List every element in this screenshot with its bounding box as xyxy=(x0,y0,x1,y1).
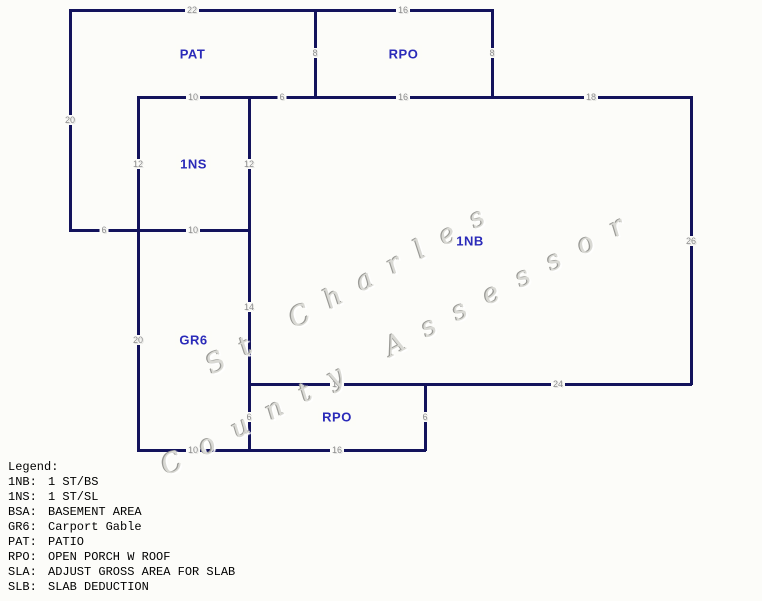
dimension-label: 6 xyxy=(420,412,429,422)
dimension-label: 12 xyxy=(131,159,145,169)
dimension-label: 16 xyxy=(330,379,344,389)
legend-row: PAT:PATIO xyxy=(8,535,235,550)
legend-desc: Carport Gable xyxy=(48,520,235,535)
dimension-label: 18 xyxy=(584,92,598,102)
dimension-label: 10 xyxy=(186,445,200,455)
dimension-label: 12 xyxy=(242,159,256,169)
legend: Legend: 1NB:1 ST/BS1NS:1 ST/SLBSA:BASEME… xyxy=(8,460,235,595)
legend-desc: 1 ST/SL xyxy=(48,490,235,505)
legend-row: SLA:ADJUST GROSS AREA FOR SLAB xyxy=(8,565,235,580)
watermark-line1: St Charles xyxy=(200,192,507,381)
watermark-line2: County Assessor xyxy=(156,201,649,483)
area-label-pat: PAT xyxy=(176,45,210,62)
dimension-label: 24 xyxy=(551,379,565,389)
legend-code: SLA: xyxy=(8,565,48,580)
legend-code: 1NS: xyxy=(8,490,48,505)
legend-desc: ADJUST GROSS AREA FOR SLAB xyxy=(48,565,235,580)
dimension-label: 26 xyxy=(684,236,698,246)
dimension-label: 10 xyxy=(186,92,200,102)
dimension-label: 8 xyxy=(487,48,496,58)
legend-desc: OPEN PORCH W ROOF xyxy=(48,550,235,565)
legend-desc: SLAB DEDUCTION xyxy=(48,580,235,595)
legend-row: BSA:BASEMENT AREA xyxy=(8,505,235,520)
area-label-1nb: 1NB xyxy=(452,232,488,249)
legend-desc: 1 ST/BS xyxy=(48,475,235,490)
dimension-label: 6 xyxy=(99,225,108,235)
legend-title: Legend: xyxy=(8,460,235,475)
dimension-label: 16 xyxy=(396,92,410,102)
legend-code: GR6: xyxy=(8,520,48,535)
legend-desc: PATIO xyxy=(48,535,235,550)
dimension-label: 8 xyxy=(310,48,319,58)
wall-segment xyxy=(248,96,251,451)
wall-segment xyxy=(137,449,426,452)
wall-segment xyxy=(137,96,140,451)
dimension-label: 20 xyxy=(131,335,145,345)
dimension-label: 16 xyxy=(396,5,410,15)
legend-row: 1NS:1 ST/SL xyxy=(8,490,235,505)
legend-code: SLB: xyxy=(8,580,48,595)
area-label-rpo-bottom: RPO xyxy=(318,409,356,426)
dimension-label: 6 xyxy=(244,412,253,422)
legend-desc: BASEMENT AREA xyxy=(48,505,235,520)
legend-code: BSA: xyxy=(8,505,48,520)
area-label-gr6: GR6 xyxy=(175,332,211,349)
area-label-rpo-top: RPO xyxy=(385,45,423,62)
dimension-label: 6 xyxy=(277,92,286,102)
dimension-label: 20 xyxy=(63,115,77,125)
assessor-sketch-page: { "page": { "background": "#FCFCF9" }, "… xyxy=(0,0,762,601)
legend-code: RPO: xyxy=(8,550,48,565)
dimension-label: 10 xyxy=(186,225,200,235)
wall-segment xyxy=(137,96,692,99)
wall-segment xyxy=(69,229,250,232)
dimension-label: 22 xyxy=(185,5,199,15)
dimension-label: 16 xyxy=(330,445,344,455)
legend-code: PAT: xyxy=(8,535,48,550)
area-label-1ns: 1NS xyxy=(176,155,211,172)
legend-entries: 1NB:1 ST/BS1NS:1 ST/SLBSA:BASEMENT AREAG… xyxy=(8,475,235,595)
legend-row: 1NB:1 ST/BS xyxy=(8,475,235,490)
legend-row: GR6:Carport Gable xyxy=(8,520,235,535)
wall-segment xyxy=(248,383,692,386)
legend-code: 1NB: xyxy=(8,475,48,490)
dimension-label: 14 xyxy=(242,302,256,312)
legend-row: RPO:OPEN PORCH W ROOF xyxy=(8,550,235,565)
sketch-canvas: St Charles County Assessor 2216881061618… xyxy=(0,0,762,455)
legend-row: SLB:SLAB DEDUCTION xyxy=(8,580,235,595)
